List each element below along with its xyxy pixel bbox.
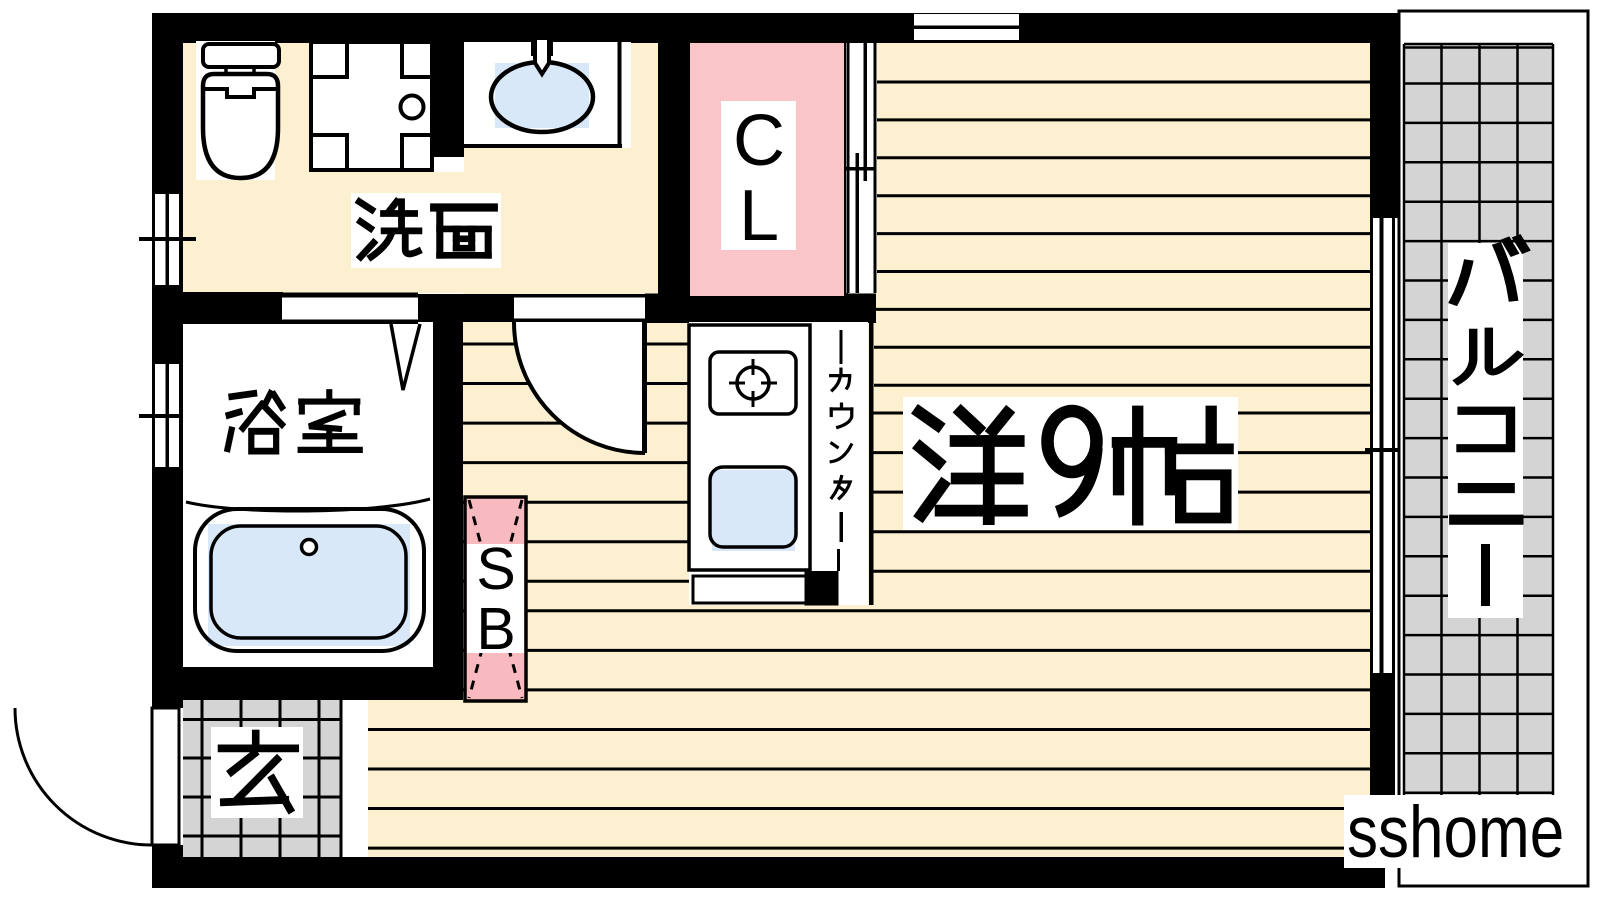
svg-text:sshome: sshome: [1347, 792, 1564, 873]
svg-text:L: L: [739, 176, 779, 256]
svg-text:B: B: [476, 596, 515, 662]
svg-text:S: S: [476, 536, 515, 602]
svg-text:C: C: [733, 101, 785, 181]
